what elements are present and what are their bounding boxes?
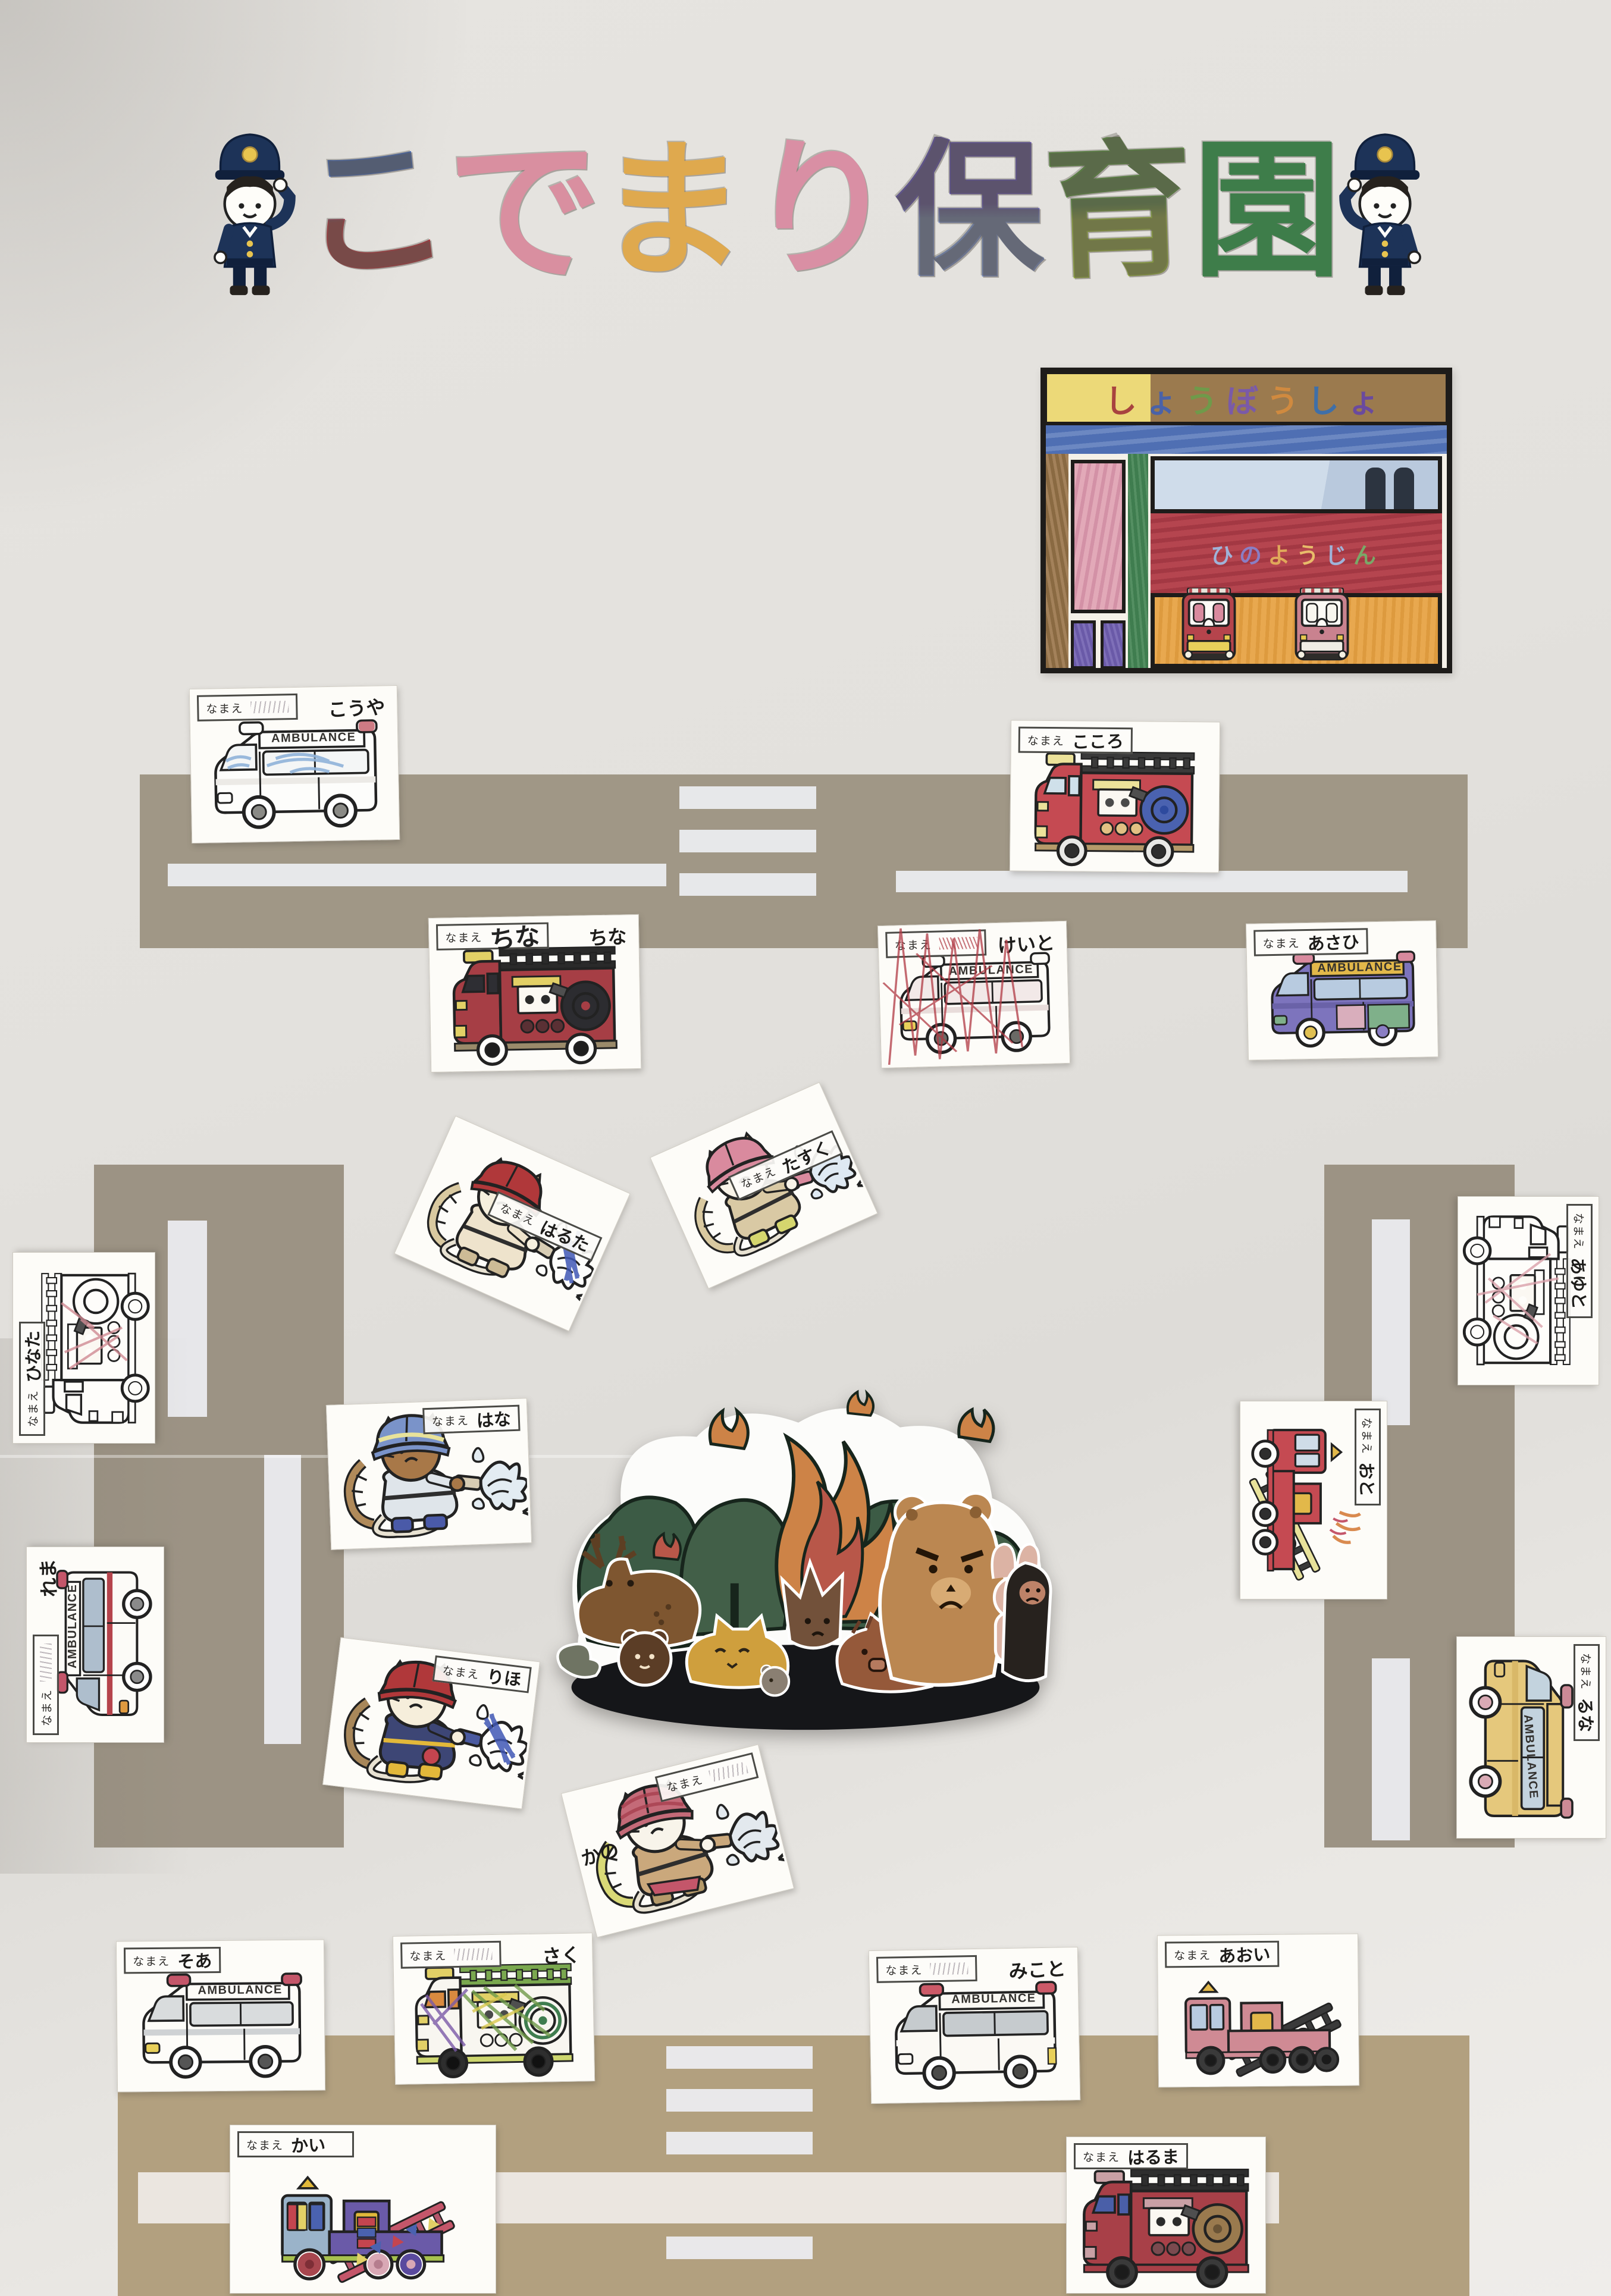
name-label: なまえ <box>1572 1213 1588 1250</box>
artwork-card-kai: なまえかい <box>230 2125 496 2294</box>
name-label-box: なまえるな <box>1574 1644 1600 1741</box>
station-left-edge <box>1046 454 1068 668</box>
name-label-box: なまえそあ <box>124 1947 221 1974</box>
artwork-card-kouya: なまえ こうや AMBULANCE <box>189 685 400 843</box>
artwork-card-soa: なまえそあ AMBULANCE <box>116 1939 325 2092</box>
lane-stripe <box>1372 1219 1410 1425</box>
name-label: なまえ <box>38 1689 54 1726</box>
child-name: るな <box>1574 1697 1600 1732</box>
child-name: あゆと <box>1566 1257 1593 1309</box>
ambulance-text: AMBULANCE <box>1309 960 1410 976</box>
poster-title: こでまり保育園 <box>300 116 1276 306</box>
artwork-card-ayuto: なまえあゆと <box>1458 1196 1599 1385</box>
name-label: なまえ <box>24 1389 40 1427</box>
crosswalk-stripe <box>666 2089 813 2112</box>
artwork-card-tasuku: なまえたすく <box>650 1082 877 1289</box>
name-label-box: なまえ <box>876 1955 977 1983</box>
name-label-box: なまえちな <box>436 923 549 951</box>
name-label: なまえ <box>445 929 482 945</box>
fire-engine-drawing <box>1014 746 1215 869</box>
station-blue-stripe <box>1046 425 1447 454</box>
fire-station-drawing: しょうぼうしょ ひのようじん <box>1040 368 1452 673</box>
lane-stripe <box>1372 1658 1410 1840</box>
name-scribble <box>250 701 289 713</box>
name-label: なまえ <box>246 2137 284 2153</box>
station-garage <box>1151 593 1442 668</box>
ambulance-text: AMBULANCE <box>939 1991 1049 2007</box>
child-name: れま <box>33 1558 62 1598</box>
name-label: なまえ <box>1360 1417 1376 1455</box>
crosswalk-stripe <box>666 2046 813 2069</box>
name-label-box: なまえはな <box>422 1405 520 1435</box>
bulletin-board-photo: こでまり保育園 しょうぼうしょ ひのようじん <box>0 0 1611 2296</box>
name-label-box: なまえかい <box>237 2131 354 2157</box>
station-purple-panel <box>1101 620 1126 669</box>
fire-station-sign: ひのようじん <box>1151 513 1442 593</box>
name-label: なまえ <box>1174 1946 1211 1963</box>
name-label: なまえ <box>441 1661 481 1682</box>
crosswalk-stripe <box>679 786 816 809</box>
forest-fire-animals-illustration <box>540 1389 1066 1744</box>
name-label: なまえ <box>409 1947 447 1963</box>
name-label: なまえ <box>1027 732 1065 748</box>
station-green-stripe <box>1128 454 1148 668</box>
name-label-box: なまえはるま <box>1074 2143 1188 2169</box>
child-name: ひなた <box>19 1330 45 1382</box>
artwork-card-keito: なまえ けいと AMBULANCE <box>877 921 1070 1068</box>
fire-engine-drawing <box>434 941 637 1069</box>
fire-truck-front-drawing <box>1174 588 1244 664</box>
artwork-card-hana: なまえはな <box>326 1398 532 1550</box>
crosswalk-stripe <box>666 2237 813 2259</box>
name-label-box: なまえ <box>400 1941 502 1969</box>
fire-engine-outline-drawing <box>1461 1200 1575 1381</box>
child-name: そあ <box>177 1947 212 1973</box>
child-name: かい <box>290 2131 325 2157</box>
name-scribble <box>40 1643 52 1682</box>
stop-line <box>168 864 666 886</box>
name-label-box: なまえあさひ <box>1253 928 1368 956</box>
artwork-card-riho: なまえりほ <box>322 1637 540 1809</box>
name-label: なまえ <box>431 1412 469 1429</box>
ambulance-drawing <box>1460 1641 1581 1834</box>
name-label-box: なまえこころ <box>1018 727 1133 754</box>
name-label-box: なまえあゆと <box>1566 1204 1593 1318</box>
child-name: おと <box>1355 1461 1381 1497</box>
artwork-card-haruma: なまえはるま <box>1066 2137 1266 2294</box>
child-name: ちな <box>588 921 627 951</box>
name-label: なまえ <box>1579 1653 1595 1690</box>
artwork-card-aoi: なまえあおい <box>1157 1934 1359 2088</box>
name-label: なまえ <box>206 700 243 716</box>
artwork-card-oto: なまえおと <box>1240 1401 1387 1599</box>
station-pink-door <box>1071 460 1126 613</box>
lane-stripe <box>264 1455 301 1744</box>
name-scribble <box>930 1962 968 1975</box>
artwork-card-kokoro: なまえこころ <box>1010 720 1220 873</box>
name-label: なまえ <box>885 1961 923 1978</box>
red-scribble-overlay <box>878 921 1070 1068</box>
artwork-card-china: なまえちな ちな <box>428 914 641 1072</box>
name-label: なまえ <box>1083 2148 1120 2165</box>
ambulance-text: AMBULANCE <box>259 730 369 745</box>
artwork-card-hinata: なまえひなた <box>12 1252 155 1444</box>
firefighter-silhouette <box>1365 468 1386 509</box>
child-name: ちな <box>488 915 541 956</box>
ladder-truck-drawing <box>1162 1960 1355 2084</box>
name-label: なまえ <box>665 1770 705 1795</box>
lane-stripe <box>168 1221 207 1417</box>
child-name: みこと <box>1008 1954 1066 1984</box>
fire-engine-drawing <box>1071 2164 1262 2290</box>
child-name: あさひ <box>1307 928 1360 955</box>
artwork-card-saku: なまえ さく <box>393 1933 595 2085</box>
stop-line <box>896 871 1408 892</box>
child-name: あおい <box>1218 1941 1270 1968</box>
child-name: はな <box>476 1405 512 1432</box>
police-officer-right-illustration <box>1331 122 1438 300</box>
crosswalk-stripe <box>679 830 816 852</box>
crosswalk-stripe <box>679 873 816 896</box>
name-label: なまえ <box>1262 934 1300 951</box>
ambulance-text: AMBULANCE <box>185 1983 295 1998</box>
ladder-truck-drawing <box>236 2154 490 2289</box>
firefighter-silhouette <box>1394 468 1414 509</box>
fire-station-banner: しょうぼうしょ <box>1043 371 1449 425</box>
name-label-box: なまえおと <box>1355 1409 1381 1505</box>
fire-engine-outline-drawing <box>37 1256 152 1439</box>
child-name: こうや <box>327 692 385 723</box>
artwork-card-haruta: なまえはるた <box>394 1115 630 1331</box>
artwork-card-rema: なまえ れま AMBULANCE <box>26 1547 164 1743</box>
crosswalk-stripe <box>666 2132 813 2154</box>
name-label-box: なまえひなた <box>19 1322 45 1436</box>
fire-truck-front-drawing <box>1287 588 1357 664</box>
ladder-truck-drawing <box>1243 1406 1362 1595</box>
name-label-box: なまえ <box>197 694 298 722</box>
fire-engine-drawing <box>397 1958 590 2081</box>
station-window <box>1151 456 1442 513</box>
child-name: さく <box>541 1940 581 1969</box>
name-label: なまえ <box>133 1952 170 1969</box>
child-name: りほ <box>485 1663 522 1691</box>
ambulance-text: AMBULANCE <box>66 1574 80 1678</box>
name-scribble <box>709 1761 748 1782</box>
name-label-box: なまえ <box>33 1635 59 1735</box>
name-scribble <box>454 1948 492 1961</box>
child-name: こころ <box>1071 727 1124 754</box>
child-name: はるま <box>1127 2143 1179 2169</box>
artwork-card-asahi: なまえあさひ AMBULANCE <box>1246 920 1438 1061</box>
station-purple-panel <box>1071 620 1096 669</box>
artwork-card-runa: なまえるな AMBULANCE <box>1456 1636 1606 1839</box>
police-officer-left-illustration <box>196 122 303 300</box>
artwork-card-mikoto: なまえ みこと AMBULANCE <box>869 1947 1080 2104</box>
name-label-box: なまえあおい <box>1165 1941 1279 1968</box>
artwork-card-kano: なまえ かの <box>561 1744 794 1937</box>
